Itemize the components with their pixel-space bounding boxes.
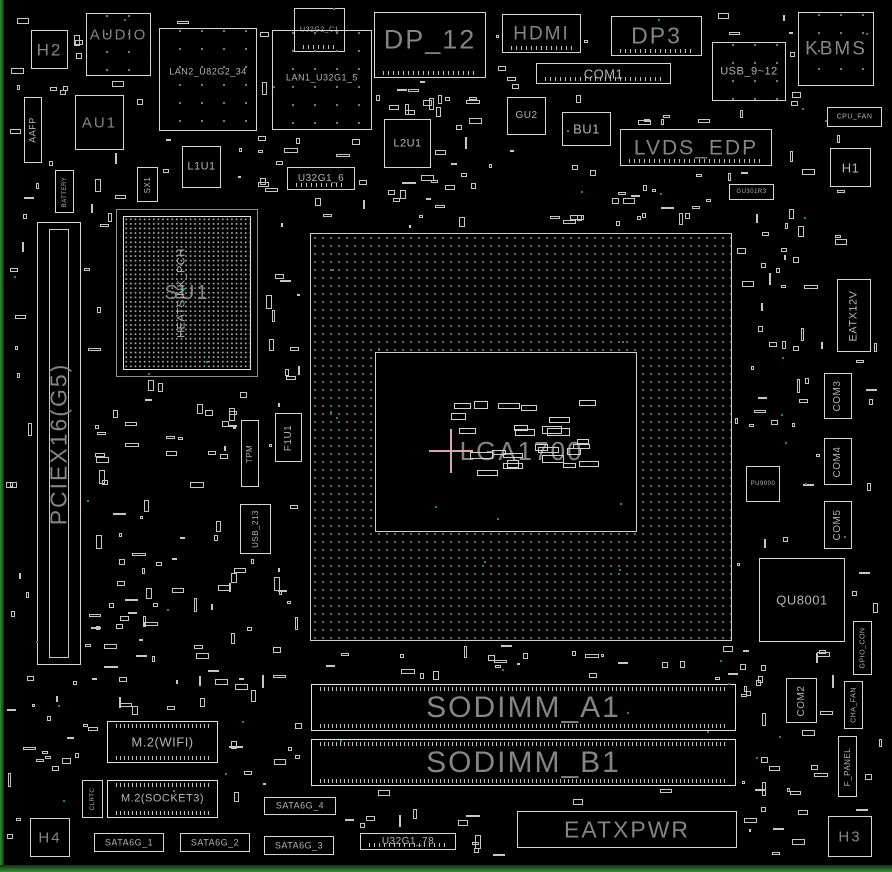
com5-header: COM5 [824, 501, 852, 549]
eatxpwr-connector: EATXPWR [517, 811, 737, 848]
h3-mount-label: H3 [838, 829, 861, 844]
com1-header-label: COM1 [584, 67, 624, 80]
test-point [622, 341, 624, 343]
u32g1-6-header-label: U32G1_6 [298, 174, 344, 184]
com4-header: COM4 [824, 438, 852, 485]
hdmi-port: HDMI [502, 14, 581, 53]
test-point [330, 411, 332, 413]
test-point [627, 712, 629, 714]
eatxpwr-connector-label: EATXPWR [564, 818, 690, 841]
m2-socket3-slot: M.2(SOCKET3) [107, 780, 218, 818]
test-point [802, 108, 804, 110]
sata6g-2-connector-label: SATA6G_2 [191, 838, 239, 847]
sx1-label: SX1 [144, 176, 152, 193]
audio-connector: AUDIO [86, 13, 151, 76]
test-point [658, 19, 660, 21]
bu1-chip: BU1 [562, 112, 611, 146]
f1u1: F1U1 [275, 413, 302, 462]
test-point [660, 193, 662, 195]
cpu-socket-label: LGA1700 [460, 438, 584, 464]
gpio-con-header-label: GPIO_CON [859, 628, 866, 669]
dp-12-port: DP_12 [374, 12, 486, 78]
eatx12v-connector-label: EATX12V [849, 290, 860, 341]
dp3-port: DP3 [611, 16, 702, 56]
battery-label: BATTERY [62, 176, 68, 207]
battery: BATTERY [55, 170, 74, 213]
f-panel-header-label: F_PANEL [844, 747, 852, 785]
test-point [183, 288, 185, 290]
kbms-port: KBMS [798, 12, 874, 86]
tpm-header-label: TPM [246, 444, 254, 462]
com3-header-label: COM3 [833, 381, 843, 412]
f-panel-header: F_PANEL [838, 736, 857, 797]
clrtc-jumper-label: CLRTC [90, 788, 96, 810]
pciex16-slot-label: PCIEX16(G5) [48, 362, 71, 525]
test-point [173, 790, 175, 792]
test-point [225, 773, 227, 775]
test-point [728, 683, 730, 685]
dp3-port-label: DP3 [631, 25, 682, 48]
lvds-edp-header: LVDS_EDP [620, 129, 772, 166]
h2-mount-label: H2 [37, 41, 63, 58]
socket-crosshair-v [450, 429, 452, 473]
h4-mount: H4 [30, 818, 70, 857]
com2-header: COM2 [786, 678, 817, 723]
motherboard-layout-diagram: H2AUDIOLAN2_U82G2_34U32G2_C1LAN1_U32G1_5… [0, 0, 892, 872]
test-point [206, 361, 208, 363]
test-point [680, 149, 682, 151]
h2-mount: H2 [31, 30, 68, 69]
test-point [785, 442, 787, 444]
lan1-port: LAN1_U32G1_5 [272, 30, 372, 130]
m2-wifi-slot-label: M.2(WIFI) [131, 736, 193, 749]
test-point [619, 569, 621, 571]
kbms-port-label: KBMS [805, 40, 867, 59]
test-point [720, 660, 722, 662]
test-point [497, 518, 499, 520]
lan2-port: LAN2_U82G2_34 [159, 28, 257, 131]
l1u1-chip-label: L1U1 [187, 162, 215, 173]
cpu-socket: LGA1700 [375, 352, 637, 532]
pu9000-chip-label: PU9000 [751, 481, 776, 487]
test-point [167, 609, 169, 611]
test-point [620, 503, 622, 505]
cha-fan-header-label: CHA_FAN [850, 687, 857, 723]
sx1: SX1 [137, 167, 158, 202]
dp-12-port-label: DP_12 [384, 26, 477, 53]
sata6g-1-connector-label: SATA6G_1 [105, 838, 153, 847]
hdmi-port-label: HDMI [513, 24, 570, 43]
test-point [340, 740, 342, 742]
test-point [484, 561, 486, 563]
sata6g-3-connector-label: SATA6G_3 [275, 841, 323, 850]
tpm-header: TPM [241, 420, 259, 487]
pch-heatsink-label-label: HEATSINK_PCH [177, 248, 188, 338]
test-point [63, 800, 65, 802]
h1-mount-label: H1 [842, 161, 860, 174]
test-point [378, 348, 380, 350]
cha-fan-header: CHA_FAN [844, 681, 863, 729]
test-point [782, 357, 784, 359]
gu301r3-part-label: GU301R3 [736, 189, 766, 195]
pch-heatsink-label: HEATSINK_PCH [170, 230, 194, 356]
usb-9-12-header-label: USB_9~12 [720, 66, 778, 77]
au1-chip-label: AU1 [82, 115, 117, 130]
u32g1-78-header-label: U32G1_78 [382, 837, 434, 847]
test-point [87, 500, 89, 502]
aafp-header: AAFP [24, 97, 42, 163]
qu8001-chip: QU8001 [759, 558, 845, 642]
sodimm-b1-slot-label: SODIMM_B1 [426, 748, 621, 778]
audio-connector-label: AUDIO [90, 27, 148, 42]
test-point [148, 373, 150, 375]
sata6g-3-connector: SATA6G_3 [264, 836, 334, 855]
usb-213-header: USB_213 [240, 504, 271, 554]
com1-header: COM1 [536, 63, 671, 84]
com4-header-label: COM4 [833, 446, 843, 477]
test-point [435, 506, 437, 508]
f1u1-label: F1U1 [284, 424, 294, 450]
test-point [581, 191, 583, 193]
test-point [804, 217, 806, 219]
test-point [567, 130, 569, 132]
test-point [756, 757, 758, 759]
l2u1-chip-label: L2U1 [393, 138, 421, 149]
l2u1-chip: L2U1 [384, 119, 431, 168]
sodimm-b1-slot: SODIMM_B1 [311, 739, 736, 786]
test-point [332, 269, 334, 271]
usb-9-12-header: USB_9~12 [712, 42, 786, 101]
test-point [825, 120, 827, 122]
gu2-chip-label: GU2 [515, 111, 537, 121]
lvds-edp-header-label: LVDS_EDP [634, 137, 758, 158]
test-point [844, 536, 846, 538]
l1u1-chip: L1U1 [182, 146, 221, 188]
qu8001-chip-label: QU8001 [776, 594, 827, 607]
test-point [333, 8, 335, 10]
sata6g-1-connector: SATA6G_1 [94, 833, 164, 852]
au1-chip: AU1 [75, 95, 124, 150]
gu301r3-part: GU301R3 [729, 184, 774, 200]
test-point [273, 86, 275, 88]
m2-wifi-slot: M.2(WIFI) [107, 721, 218, 763]
lan2-port-label: LAN2_U82G2_34 [169, 68, 247, 77]
board-edge-left [0, 0, 4, 872]
test-point [866, 33, 868, 35]
gpio-con-header: GPIO_CON [853, 621, 872, 675]
test-point [781, 414, 783, 416]
test-point [124, 19, 126, 21]
aafp-header-label: AAFP [29, 117, 38, 143]
eatx12v-connector: EATX12V [837, 279, 871, 352]
sata6g-4-connector: SATA6G_4 [264, 797, 336, 815]
lan1-port-label: LAN1_U32G1_5 [286, 74, 358, 83]
h4-mount-label: H4 [38, 830, 61, 845]
test-point [58, 705, 60, 707]
bu1-chip-label: BU1 [573, 123, 600, 136]
board-edge-bottom [0, 865, 892, 872]
test-point [707, 731, 709, 733]
usb-213-header-label: USB_213 [252, 510, 260, 548]
test-point [242, 721, 244, 723]
com5-header-label: COM5 [833, 510, 843, 541]
test-point [36, 641, 38, 643]
test-point [502, 669, 504, 671]
test-point [805, 483, 807, 485]
test-point [418, 573, 420, 575]
h3-mount: H3 [828, 816, 872, 857]
sodimm-a1-slot-label: SODIMM_A1 [426, 693, 621, 723]
test-point [14, 276, 16, 278]
com2-header-label: COM2 [797, 685, 807, 716]
h1-mount: H1 [830, 148, 871, 187]
gu2-chip: GU2 [507, 97, 546, 135]
test-point [779, 736, 781, 738]
clrtc-jumper: CLRTC [82, 780, 103, 818]
sodimm-a1-slot: SODIMM_A1 [311, 684, 736, 731]
sata6g-4-connector-label: SATA6G_4 [276, 802, 324, 811]
pciex16-slot: PCIEX16(G5) [37, 222, 81, 665]
com3-header: COM3 [824, 373, 852, 419]
test-point [336, 417, 338, 419]
cpu-fan-header: CPU_FAN [827, 107, 882, 127]
m2-socket3-slot-label: M.2(SOCKET3) [121, 794, 204, 805]
u32g1-78-header: U32G1_78 [360, 833, 456, 850]
pu9000-chip: PU9000 [746, 466, 780, 502]
u32g1-6-header: U32G1_6 [287, 167, 355, 190]
sata6g-2-connector: SATA6G_2 [180, 833, 250, 852]
cpu-fan-header-label: CPU_FAN [837, 114, 873, 121]
